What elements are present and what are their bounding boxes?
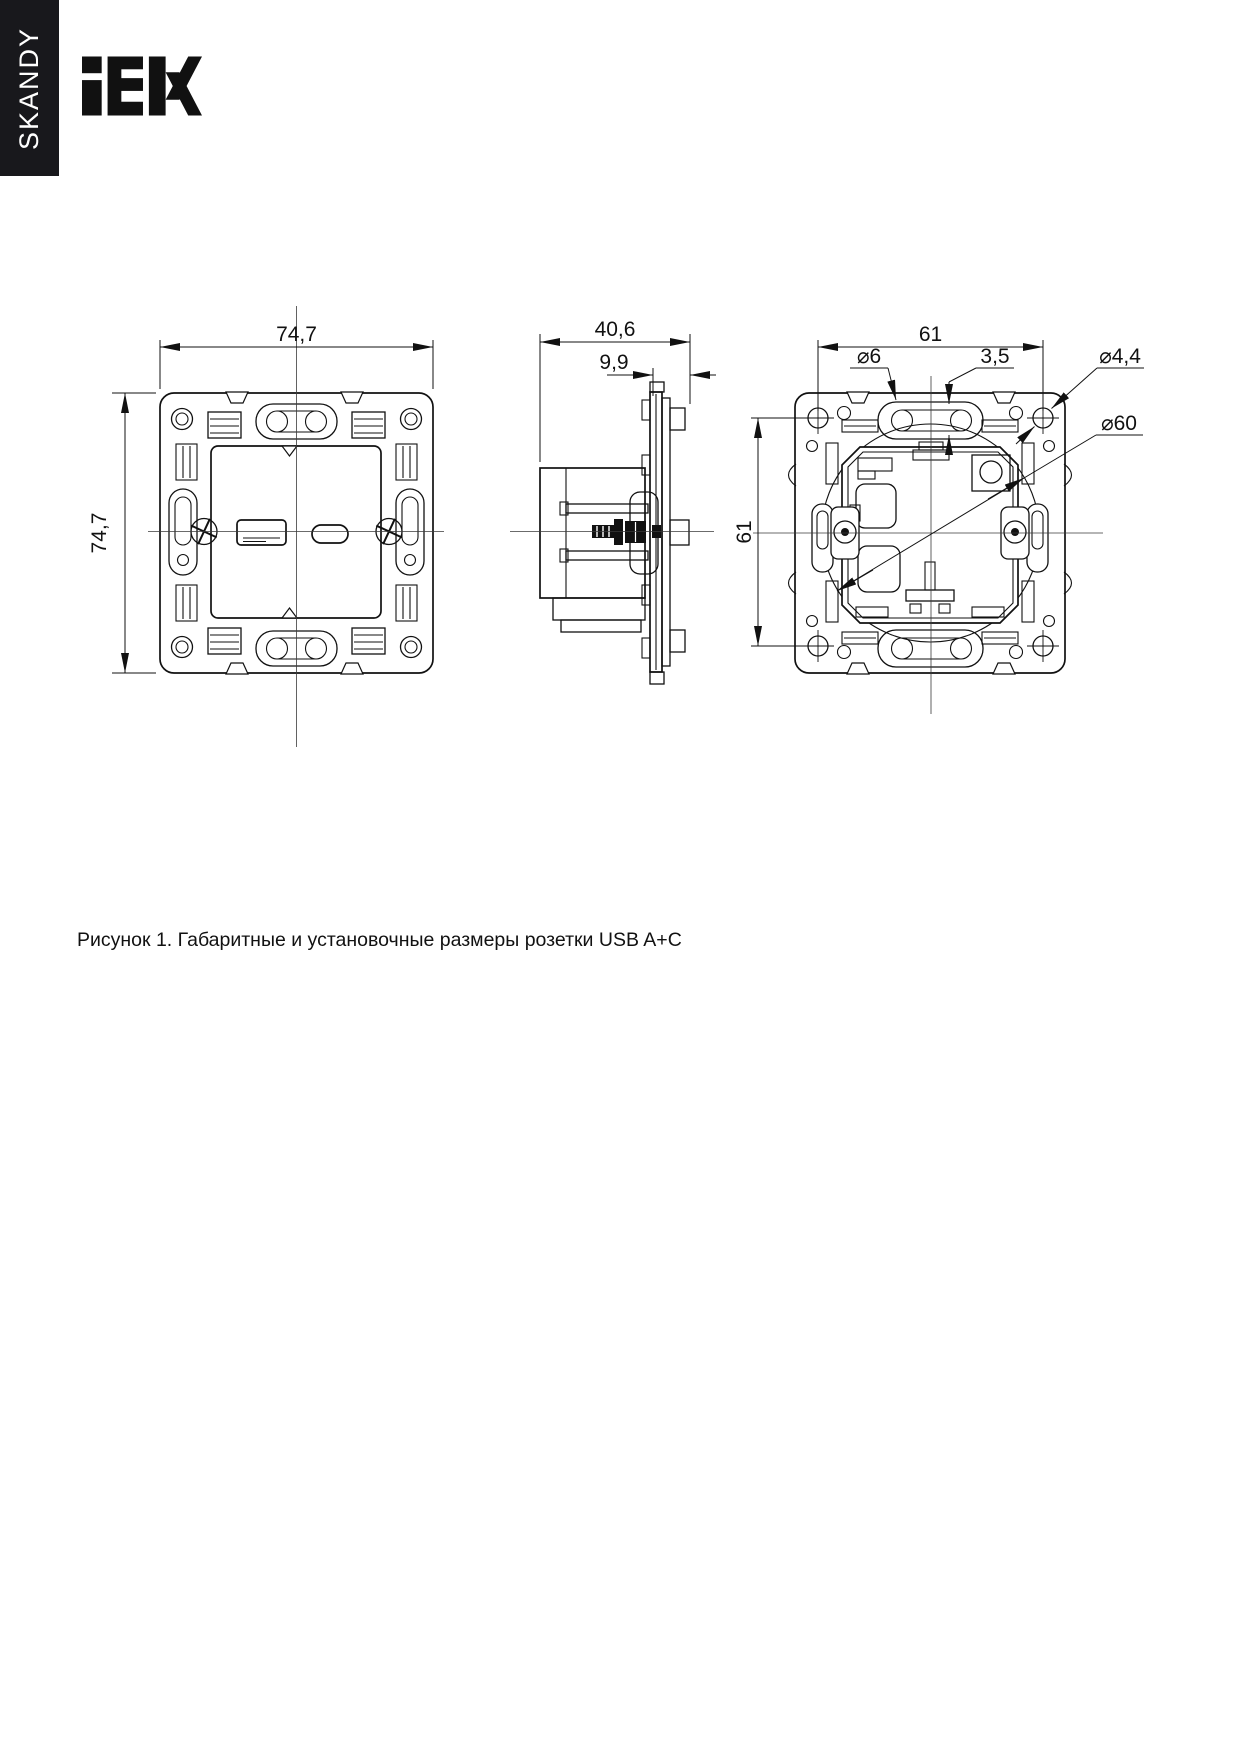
front-view-drawing: 74,7 74,7 — [88, 306, 444, 747]
back-view-drawing: 61 61 ⌀6 3,5 — [733, 323, 1144, 714]
dim-side-frame-depth: 9,9 — [599, 351, 716, 396]
side-mounting-plate — [642, 382, 689, 684]
dim-side-depth: 40,6 — [540, 318, 690, 462]
figure-caption: Рисунок 1. Габаритные и установочные раз… — [77, 929, 682, 952]
iek-logo — [82, 56, 202, 116]
iek-logo-i-dot — [82, 56, 102, 73]
dim-front-height: 74,7 — [88, 393, 156, 673]
dim-side-depth-label: 40,6 — [595, 318, 636, 341]
dim-side-frame-depth-label: 9,9 — [599, 351, 628, 374]
iek-logo-k-bar — [149, 56, 166, 115]
datasheet-page: SKANDY — [0, 0, 1239, 1746]
iek-logo-i-stem — [82, 80, 102, 115]
series-label: SKANDY — [14, 26, 45, 149]
dimension-drawings: 74,7 74,7 — [0, 250, 1239, 770]
dim-back-hole-spacing-vertical-label: 61 — [733, 520, 756, 543]
usb-c-port — [312, 525, 348, 543]
iek-logo-e — [108, 56, 143, 115]
dim-back-slot-diameter-label: ⌀6 — [857, 345, 881, 368]
dim-back-slot-width-label: 3,5 — [980, 345, 1009, 368]
dim-back-hole-spacing-horizontal-label: 61 — [919, 323, 942, 346]
dim-back-installation-diameter-label: ⌀60 — [1101, 412, 1137, 435]
usb-a-port — [237, 520, 286, 545]
dim-back-hole-spacing-vertical: 61 — [733, 418, 810, 646]
series-sidebar: SKANDY — [0, 0, 59, 176]
side-view-drawing: 40,6 9,9 — [510, 318, 716, 684]
dim-front-height-label: 74,7 — [88, 513, 111, 554]
dim-back-hole-diameter-label: ⌀4,4 — [1099, 345, 1141, 368]
dim-front-width-label: 74,7 — [276, 323, 317, 346]
